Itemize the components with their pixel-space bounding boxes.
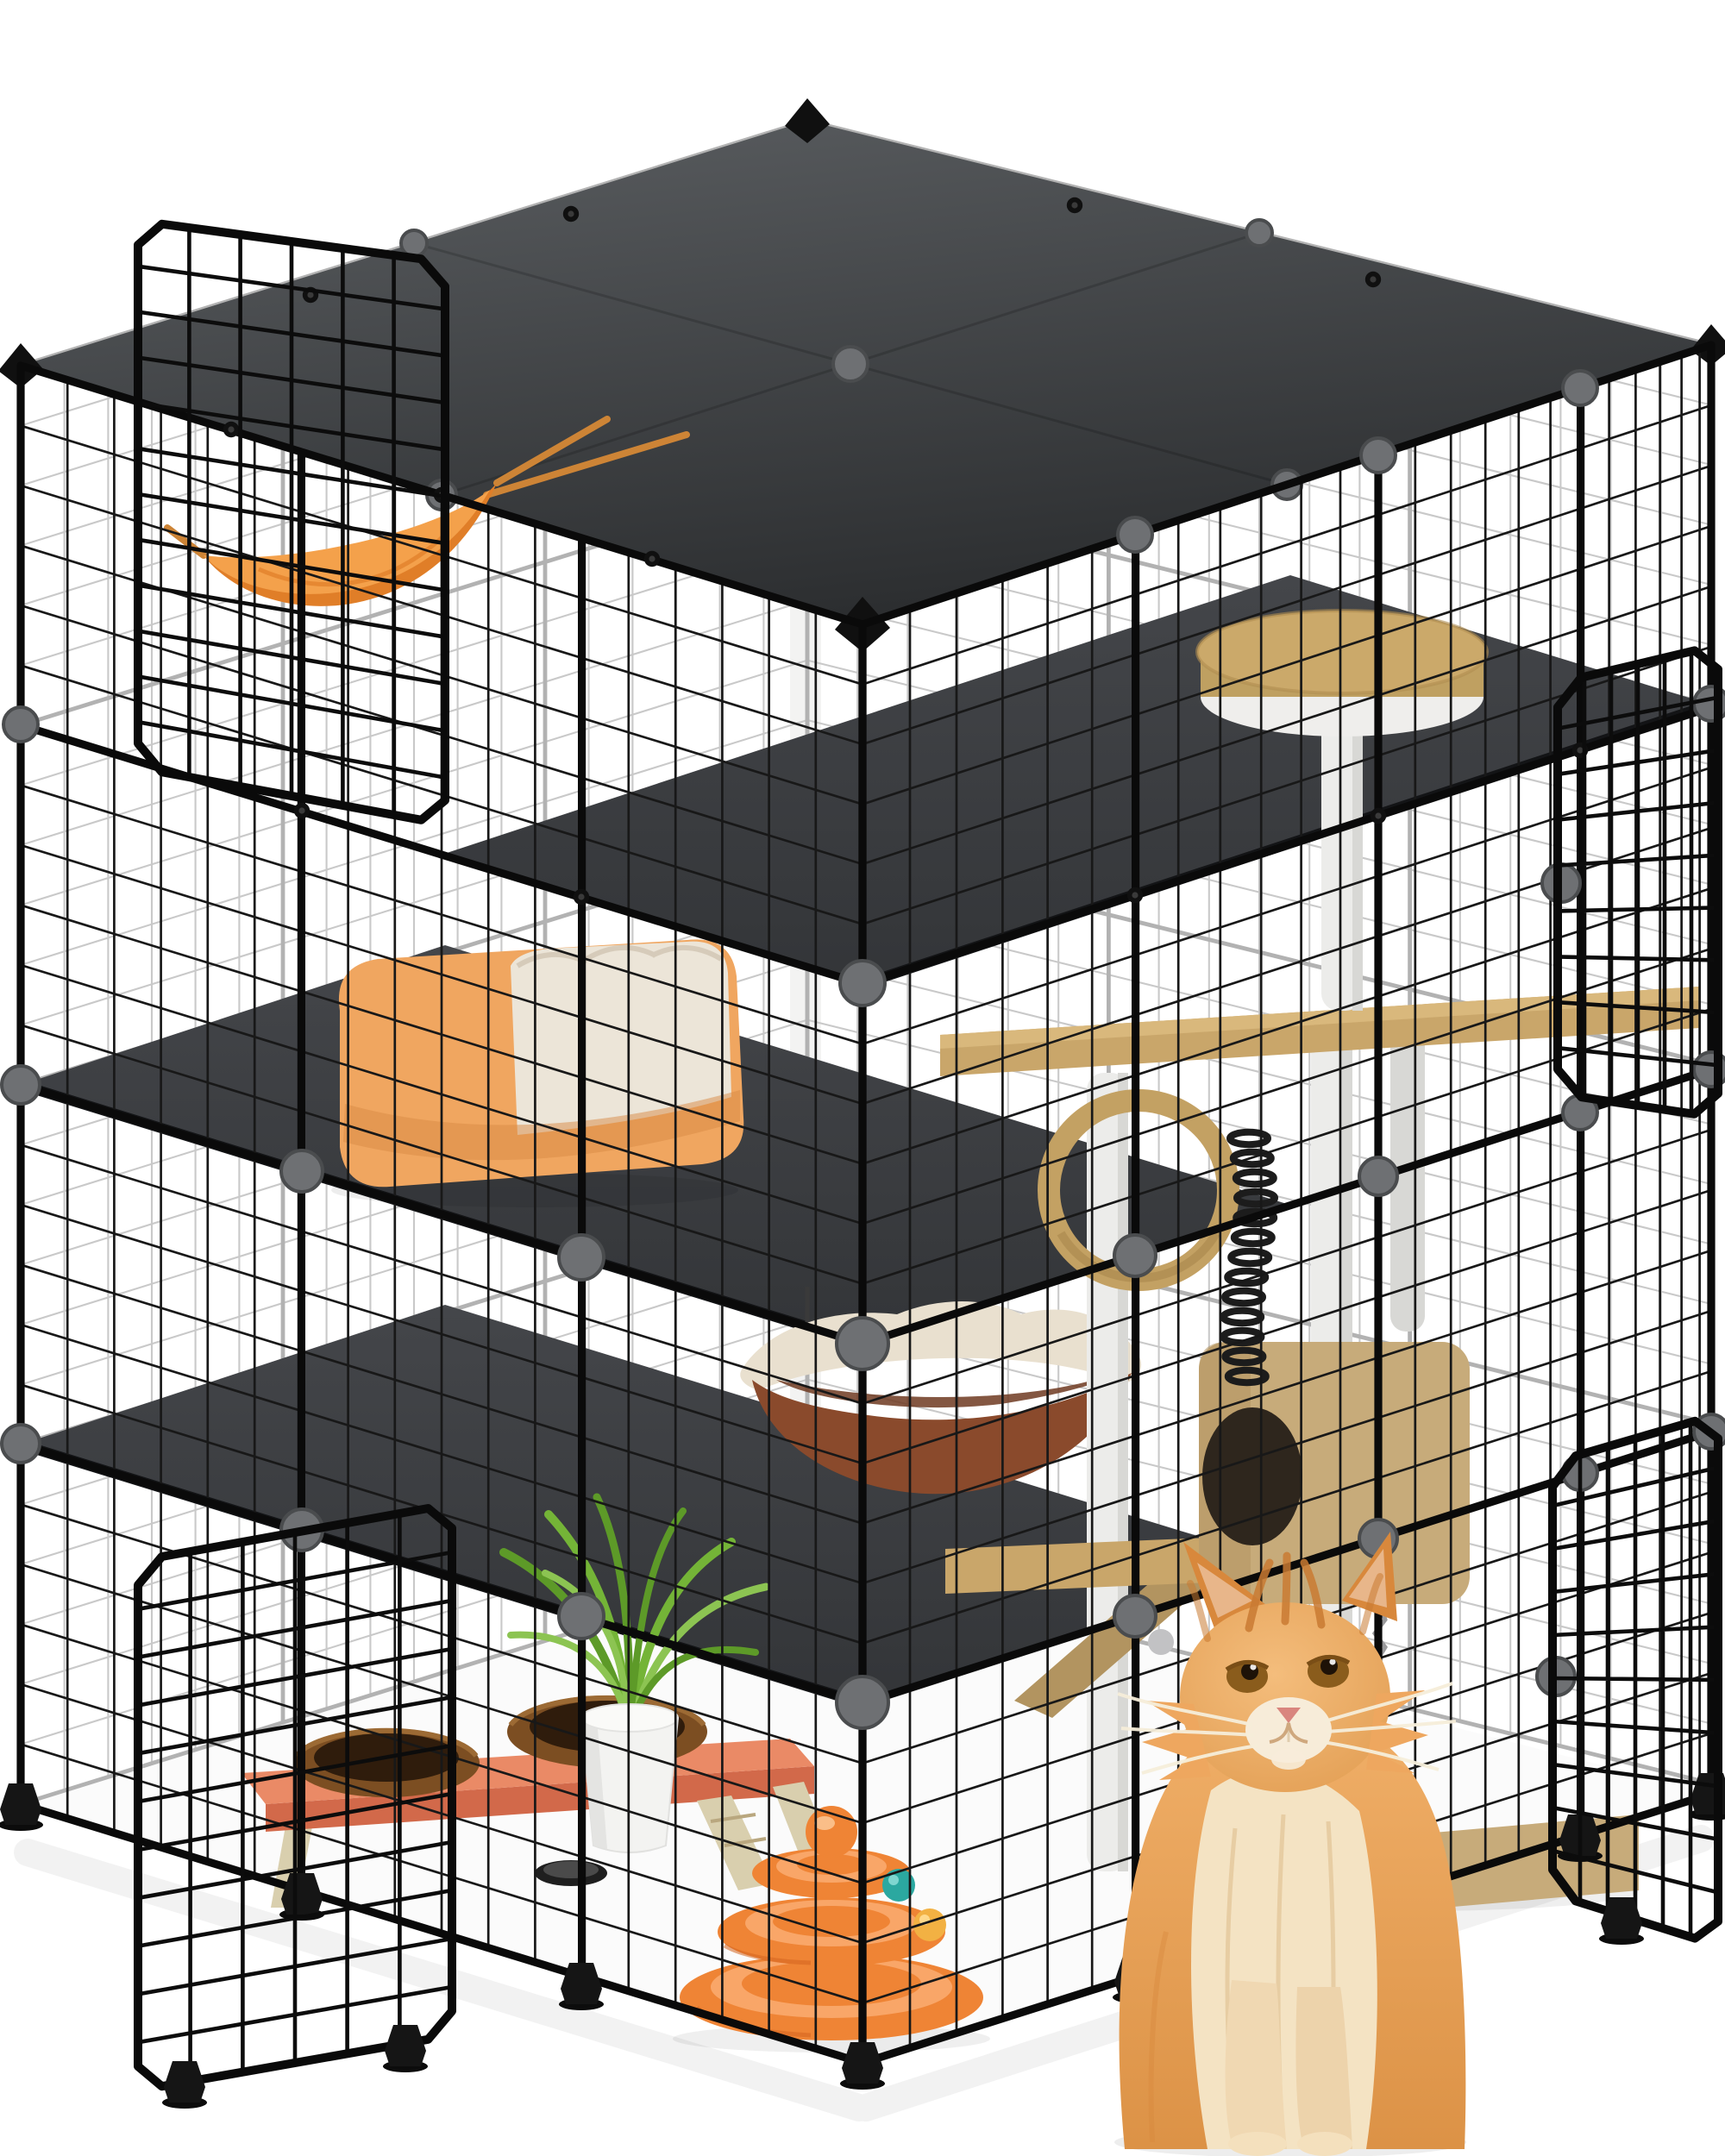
panel-connector (2, 1066, 40, 1104)
cage-foot (383, 2025, 428, 2072)
panel-connector (1246, 220, 1272, 246)
cat (1114, 1532, 1466, 2156)
panel-connector (1361, 438, 1396, 473)
panel-connector (2, 1425, 40, 1463)
toy-ball (1148, 1629, 1174, 1655)
panel-connector (837, 1318, 888, 1369)
panel-connector (837, 1677, 888, 1728)
panel-connector (559, 1235, 604, 1280)
panel-connector (3, 707, 38, 742)
panel-connector (1114, 1595, 1156, 1637)
panel-connector (559, 1594, 604, 1639)
cage-foot (0, 1783, 43, 1831)
cat-eye (1226, 1660, 1268, 1693)
panel-connector (401, 230, 427, 256)
panel-connector (1118, 517, 1152, 552)
cat-cage-scene (0, 0, 1725, 2156)
product-photo (0, 0, 1725, 2156)
panel-connector (840, 961, 885, 1006)
cat-eye (1308, 1655, 1349, 1688)
cage-foot (162, 2061, 207, 2109)
panel-connector (1359, 1157, 1397, 1195)
panel-connector (1114, 1235, 1156, 1276)
cat-front-leg (1226, 1980, 1287, 2149)
panel-connector (281, 1150, 323, 1192)
panel-connector (833, 347, 868, 381)
panel-connector (1563, 371, 1597, 405)
